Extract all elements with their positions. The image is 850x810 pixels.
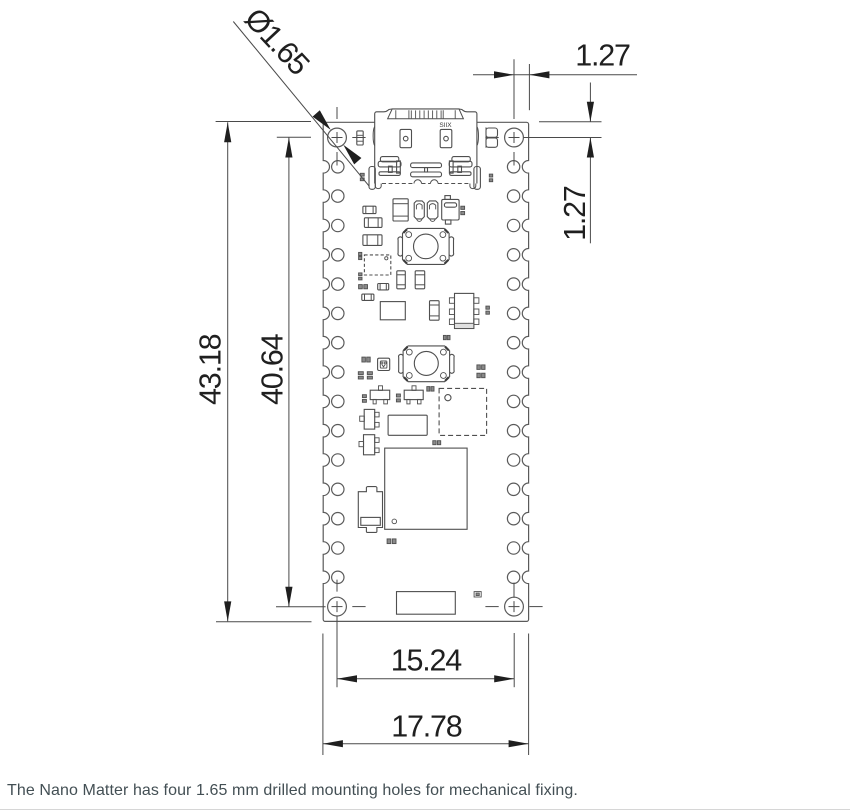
svg-text:1.27: 1.27 (575, 38, 630, 72)
svg-text:1.27: 1.27 (558, 186, 592, 241)
svg-text:SIIX: SIIX (439, 122, 452, 129)
svg-text:17.78: 17.78 (391, 710, 462, 744)
svg-text:43.18: 43.18 (194, 334, 228, 405)
svg-text:15.24: 15.24 (391, 644, 463, 678)
svg-text:40.64: 40.64 (256, 333, 290, 405)
